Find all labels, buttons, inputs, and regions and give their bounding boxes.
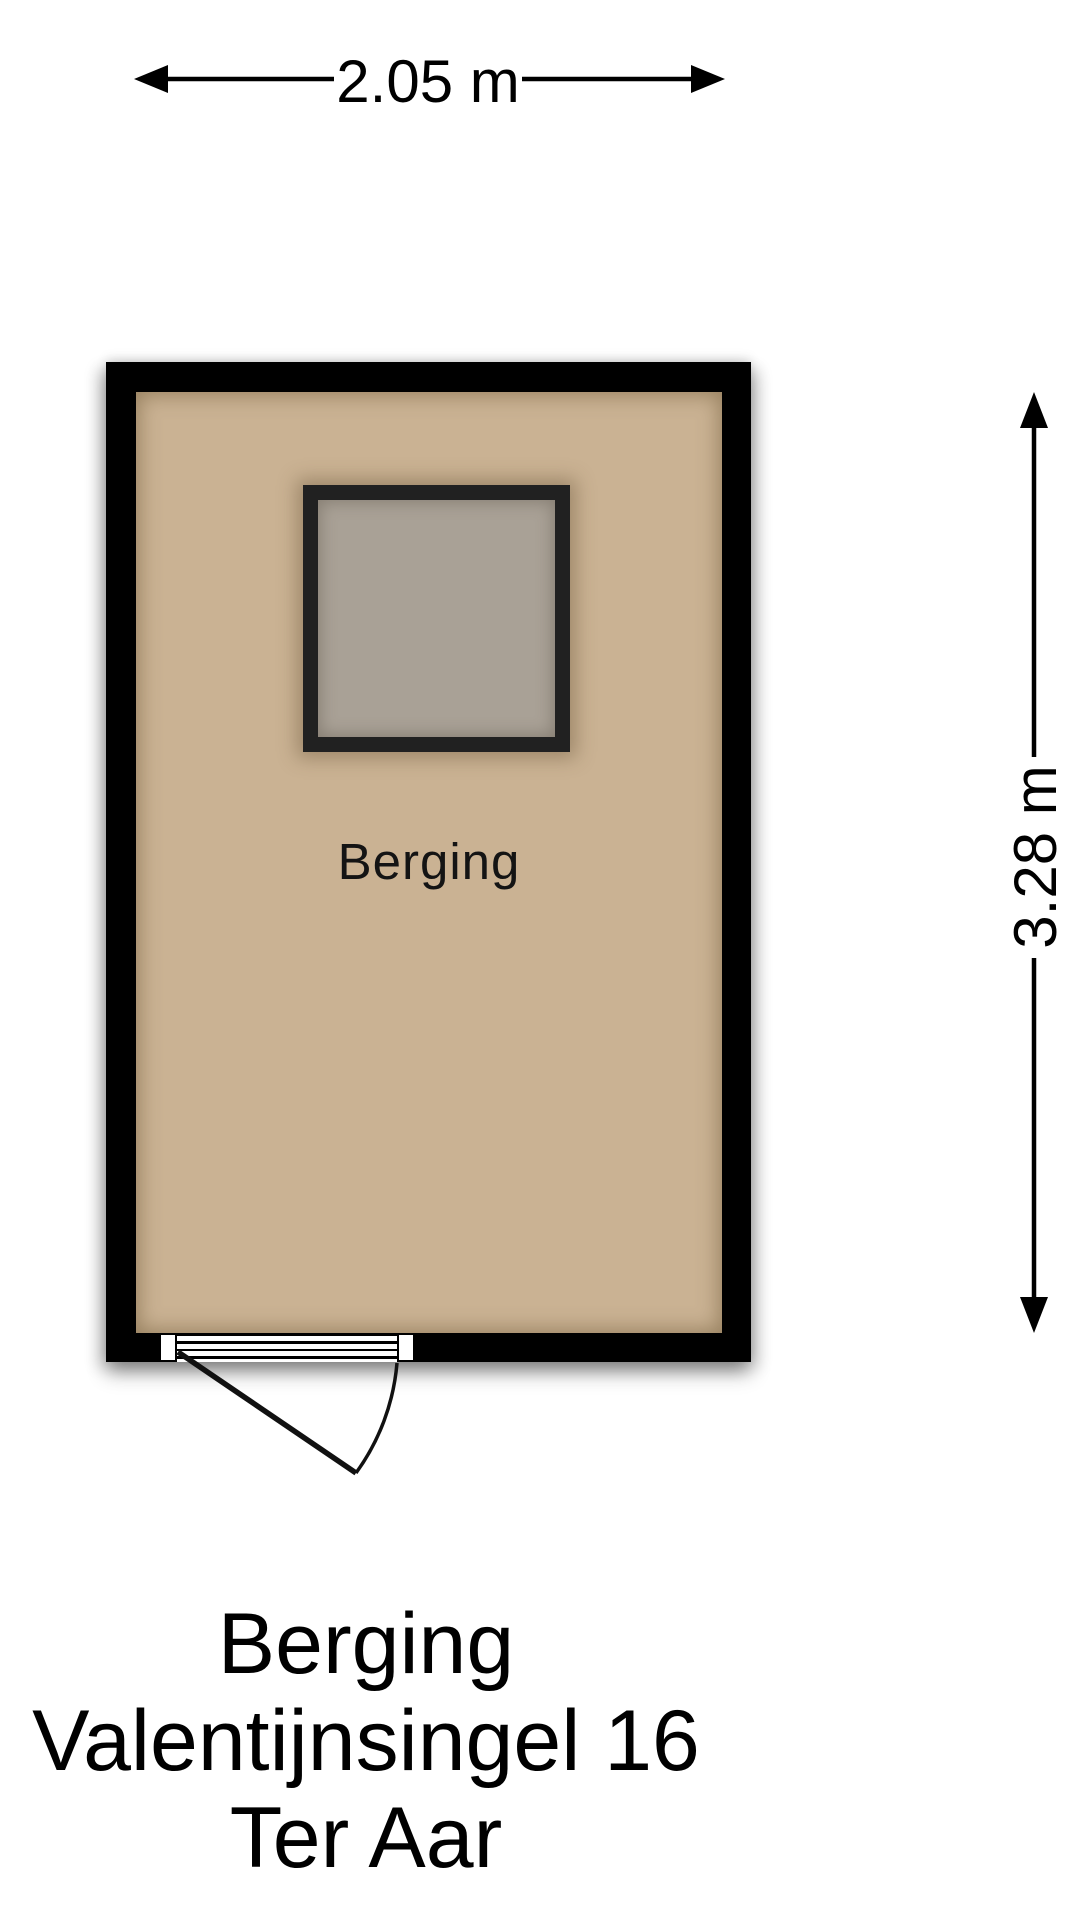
arrow-right-icon [691, 65, 725, 93]
arrow-left-icon [134, 65, 168, 93]
width-dimension-label: 2.05 m [278, 51, 578, 113]
height-dimension-label: 3.28 m [1005, 747, 1067, 967]
roof-window [303, 485, 570, 752]
title-line-address: Valentijnsingel 16 [16, 1693, 716, 1790]
door-swing-arc [356, 1363, 397, 1473]
door-slat-line [177, 1349, 397, 1352]
door-leaf-slats [177, 1333, 397, 1362]
plan-title: Berging Valentijnsingel 16 Ter Aar [16, 1596, 716, 1887]
arrow-down-icon [1020, 1297, 1048, 1333]
door-slat-line [177, 1356, 397, 1359]
room-floor: Berging [136, 392, 722, 1333]
room-walls: Berging [106, 362, 751, 1362]
title-line-city: Ter Aar [16, 1790, 716, 1887]
title-line-room: Berging [16, 1596, 716, 1693]
door-post-right [397, 1333, 415, 1362]
door-post-left [159, 1333, 177, 1362]
arrow-up-icon [1020, 392, 1048, 428]
door-swing [178, 1352, 397, 1473]
room-label: Berging [136, 831, 722, 893]
door-slat-line [177, 1341, 397, 1344]
floorplan-page: 2.05 m 3.28 m Berging [0, 0, 1080, 1920]
door-leaf-line [178, 1352, 356, 1473]
